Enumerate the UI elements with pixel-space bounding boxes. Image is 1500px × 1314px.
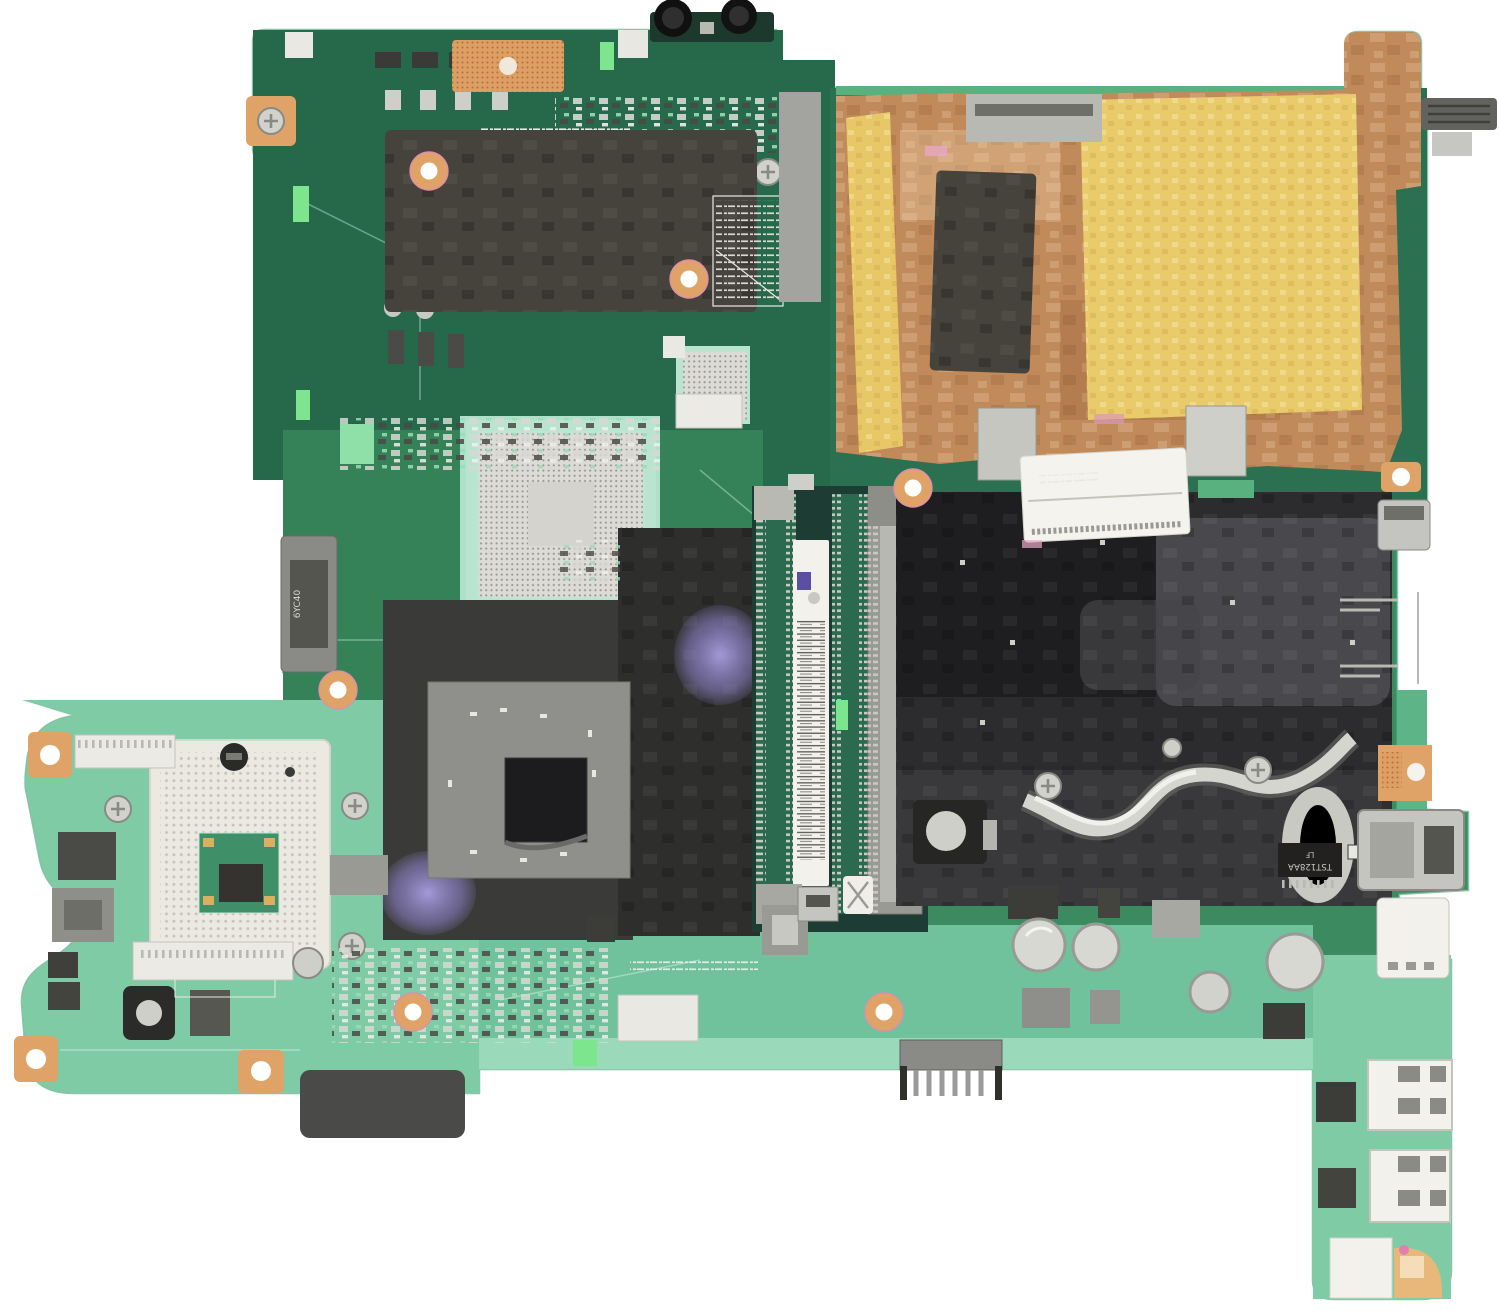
gray-chip (1152, 900, 1200, 938)
gray-tab (1186, 406, 1246, 476)
battery-pin-header (900, 1040, 1002, 1100)
dark-chip (1098, 888, 1120, 918)
electrolytic-capacitor (1073, 924, 1119, 970)
usb-port-bottom-2 (1370, 1150, 1450, 1222)
electrolytic-capacitor (1267, 934, 1323, 990)
gray-chip (1022, 988, 1070, 1028)
corner-connector (285, 32, 313, 58)
electrolytic-capacitor (1190, 972, 1230, 1012)
thermal-pad-top-left (385, 130, 783, 312)
gray-chip (330, 855, 388, 895)
bottom-right-tab (1316, 1060, 1452, 1298)
capacitor (293, 948, 323, 978)
motherboard-photo: 6YC40 (0, 0, 1500, 1314)
dark-chip (1316, 1082, 1356, 1122)
motherboard-svg: 6YC40 (0, 0, 1500, 1314)
lime-pad (293, 186, 309, 222)
white-block (1330, 1238, 1392, 1298)
white-connector (75, 735, 175, 768)
edge-connector-label: 6YC40 (293, 589, 303, 618)
silkscreen-row (630, 958, 758, 971)
pink-tape (925, 146, 947, 156)
label-barcode (797, 620, 825, 860)
gray-chip (1090, 990, 1120, 1024)
gpu-die (505, 758, 587, 842)
metal-flange (779, 92, 821, 302)
white-connector (676, 394, 742, 428)
ic-label: TST128AA (1288, 861, 1333, 871)
slot-latch-top (754, 486, 794, 520)
dark-chip (1008, 885, 1058, 919)
zif-connector (1020, 448, 1190, 543)
dark-chip (1263, 1003, 1305, 1039)
component-cluster (340, 418, 660, 470)
cpu-socket-die (219, 864, 263, 902)
lime-pad (573, 1040, 597, 1066)
thermal-pad-on-copper (930, 170, 1037, 373)
bottom-edge-connector (300, 1070, 465, 1138)
dark-chip (58, 832, 116, 880)
copper-heat-spreader (779, 32, 1497, 480)
washer (1163, 739, 1181, 757)
white-connector (618, 995, 698, 1041)
pink-tape (1094, 414, 1124, 424)
dark-chip (1318, 1168, 1356, 1208)
header-connector (618, 30, 648, 58)
usb-port-bottom-1 (1368, 1060, 1452, 1130)
lime-pad (296, 390, 310, 420)
fan-connector (133, 942, 293, 980)
component-cluster (332, 948, 612, 1043)
header-pins (916, 1070, 981, 1096)
ic-label-suffix: LF (1306, 850, 1315, 859)
small-connector (663, 336, 685, 358)
connector-on-copper (966, 94, 1102, 142)
